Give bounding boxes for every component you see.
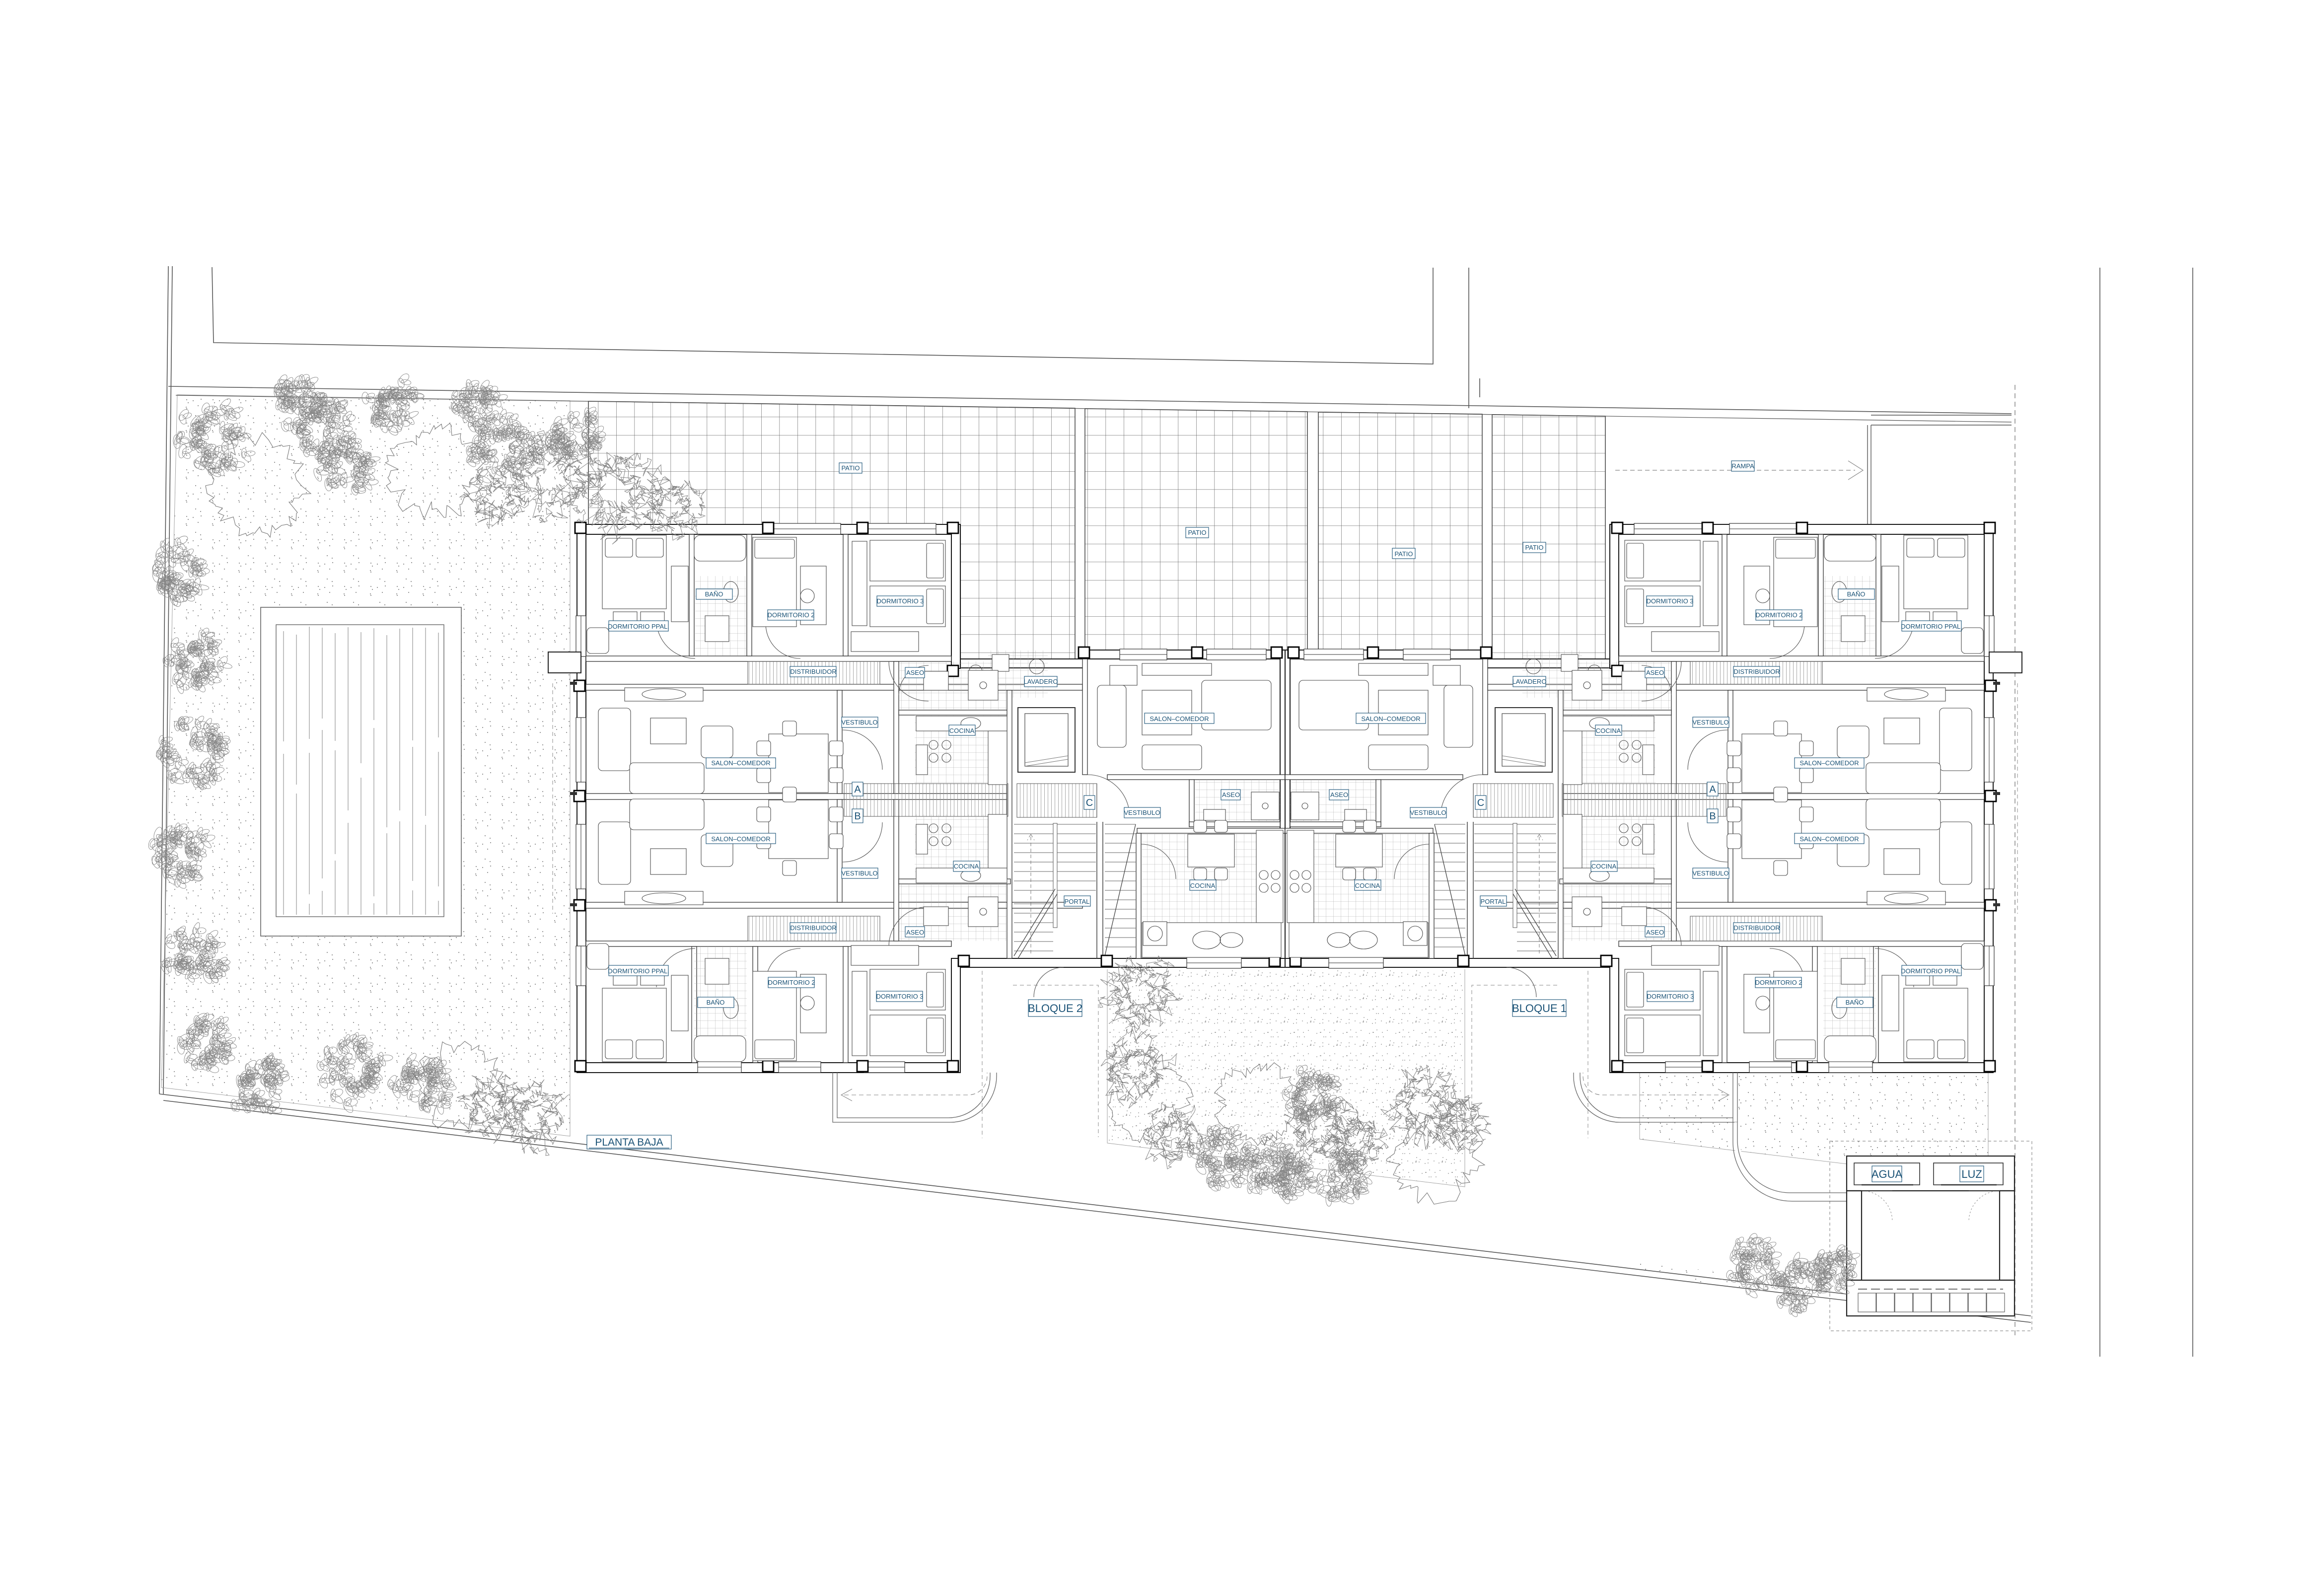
- svg-text:COCINA: COCINA: [1591, 863, 1617, 870]
- svg-text:COCINA: COCINA: [1355, 882, 1380, 889]
- svg-text:BAÑO: BAÑO: [1846, 999, 1864, 1006]
- svg-text:A: A: [1709, 784, 1716, 795]
- svg-text:C: C: [1086, 798, 1093, 808]
- svg-text:BLOQUE 2: BLOQUE 2: [1028, 1002, 1082, 1015]
- svg-text:C: C: [1477, 798, 1484, 808]
- svg-text:DISTRIBUIDOR: DISTRIBUIDOR: [1733, 924, 1780, 932]
- svg-text:VESTIBULO: VESTIBULO: [1693, 870, 1729, 877]
- svg-text:VESTIBULO: VESTIBULO: [1693, 719, 1729, 726]
- svg-text:PORTAL: PORTAL: [1065, 898, 1090, 905]
- svg-text:DORMITORIO 3: DORMITORIO 3: [1647, 993, 1694, 1000]
- svg-text:VESTIBULO: VESTIBULO: [842, 870, 878, 877]
- svg-text:ASEO: ASEO: [1330, 791, 1348, 798]
- svg-text:PORTAL: PORTAL: [1481, 898, 1506, 905]
- svg-text:SALON–COMEDOR: SALON–COMEDOR: [1799, 835, 1859, 843]
- svg-text:BAÑO: BAÑO: [1847, 590, 1866, 598]
- svg-text:LAVADERO: LAVADERO: [1024, 678, 1058, 685]
- svg-text:COCINA: COCINA: [954, 863, 979, 870]
- svg-text:B: B: [854, 811, 861, 822]
- svg-text:SALON–COMEDOR: SALON–COMEDOR: [1150, 715, 1209, 723]
- svg-text:B: B: [1709, 811, 1716, 822]
- svg-text:COCINA: COCINA: [949, 727, 975, 734]
- svg-text:ASEO: ASEO: [906, 929, 924, 936]
- svg-text:PATIO: PATIO: [1394, 550, 1413, 558]
- svg-text:DORMITORIO 3: DORMITORIO 3: [876, 597, 924, 605]
- svg-text:ASEO: ASEO: [906, 669, 924, 676]
- svg-text:DISTRIBUIDOR: DISTRIBUIDOR: [790, 924, 836, 932]
- svg-text:BAÑO: BAÑO: [705, 590, 723, 598]
- svg-text:VESTIBULO: VESTIBULO: [1124, 809, 1160, 816]
- svg-text:SALON–COMEDOR: SALON–COMEDOR: [1361, 715, 1420, 723]
- svg-text:COCINA: COCINA: [1190, 882, 1216, 889]
- svg-text:DORMITORIO 3: DORMITORIO 3: [1646, 597, 1693, 605]
- svg-text:LAVADERO: LAVADERO: [1512, 678, 1547, 685]
- svg-text:PATIO: PATIO: [1525, 544, 1543, 551]
- svg-text:COCINA: COCINA: [1596, 727, 1621, 734]
- svg-text:PLANTA BAJA: PLANTA BAJA: [595, 1137, 663, 1148]
- svg-text:DORMITORIO PPAL.: DORMITORIO PPAL.: [608, 967, 669, 975]
- svg-text:AGUA: AGUA: [1871, 1168, 1903, 1180]
- svg-text:DORMITORIO 3: DORMITORIO 3: [876, 993, 923, 1000]
- svg-text:LUZ: LUZ: [1961, 1168, 1982, 1180]
- svg-text:SALON–COMEDOR: SALON–COMEDOR: [711, 835, 770, 843]
- svg-text:PATIO: PATIO: [841, 464, 860, 472]
- svg-text:DORMITORIO 2: DORMITORIO 2: [767, 611, 814, 619]
- svg-text:DORMITORIO PPAL.: DORMITORIO PPAL.: [1901, 967, 1962, 975]
- svg-text:DORMITORIO 2: DORMITORIO 2: [768, 979, 815, 986]
- svg-text:VESTIBULO: VESTIBULO: [842, 719, 878, 726]
- svg-text:DISTRIBUIDOR: DISTRIBUIDOR: [790, 668, 836, 675]
- svg-text:SALON–COMEDOR: SALON–COMEDOR: [711, 759, 770, 767]
- svg-text:VESTIBULO: VESTIBULO: [1410, 809, 1446, 816]
- svg-text:A: A: [854, 784, 861, 795]
- svg-text:RAMPA: RAMPA: [1731, 462, 1754, 470]
- svg-text:PATIO: PATIO: [1188, 529, 1206, 536]
- svg-text:BAÑO: BAÑO: [707, 999, 725, 1006]
- svg-text:DORMITORIO 2: DORMITORIO 2: [1755, 979, 1802, 986]
- svg-text:ASEO: ASEO: [1646, 669, 1664, 676]
- svg-text:DORMITORIO 2: DORMITORIO 2: [1755, 611, 1802, 619]
- svg-text:DISTRIBUIDOR: DISTRIBUIDOR: [1733, 668, 1780, 675]
- svg-text:ASEO: ASEO: [1222, 791, 1240, 798]
- svg-text:ASEO: ASEO: [1646, 929, 1664, 936]
- svg-text:DORMITORIO PPAL.: DORMITORIO PPAL.: [1901, 623, 1962, 630]
- svg-text:BLOQUE 1: BLOQUE 1: [1512, 1002, 1567, 1015]
- svg-text:DORMITORIO PPAL.: DORMITORIO PPAL.: [608, 623, 669, 630]
- svg-text:SALON–COMEDOR: SALON–COMEDOR: [1799, 759, 1859, 767]
